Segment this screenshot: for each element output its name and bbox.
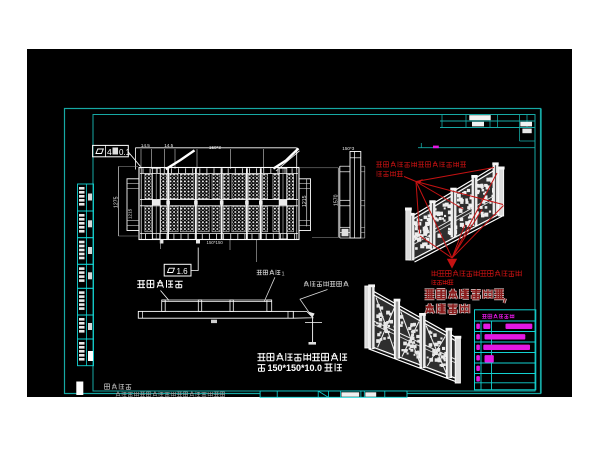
svg-text:150*3: 150*3 (342, 146, 354, 151)
svg-text:150*150*10.0: 150*150*10.0 (268, 363, 323, 373)
svg-text:1275: 1275 (114, 196, 120, 208)
svg-text:1570: 1570 (334, 194, 340, 206)
svg-text:1215: 1215 (128, 208, 133, 219)
svg-text:1: 1 (282, 271, 285, 277)
svg-text:150*3: 150*3 (209, 145, 221, 150)
svg-text:14.5: 14.5 (141, 143, 150, 148)
svg-text:4: 4 (107, 147, 112, 157)
svg-text:14.5: 14.5 (164, 143, 173, 148)
svg-text:1215: 1215 (302, 195, 308, 207)
svg-text:1.6: 1.6 (177, 267, 189, 276)
svg-text:150*150: 150*150 (207, 240, 224, 245)
